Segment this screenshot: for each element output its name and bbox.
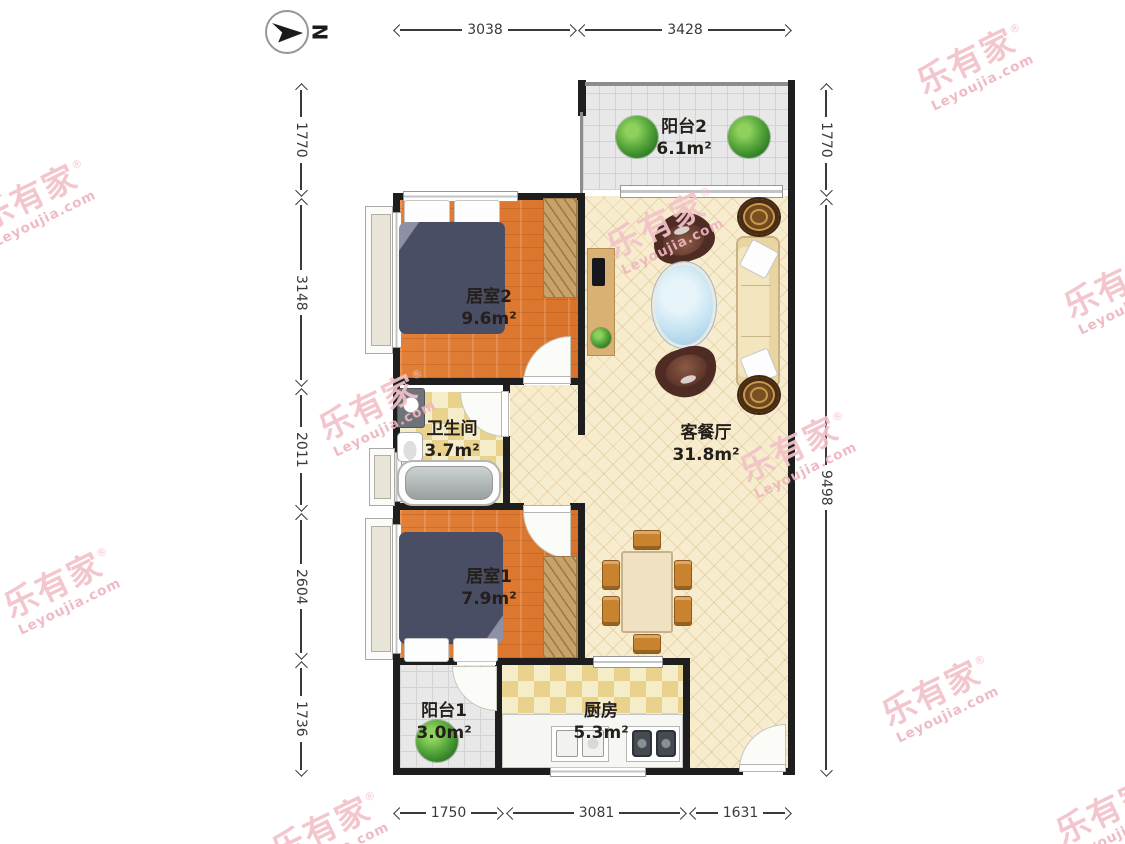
watermark: 乐有家®Leyoujia.com: [888, 0, 1059, 125]
dimension-value: 1770: [293, 117, 309, 163]
dimension-top-1: 3038: [395, 20, 575, 40]
room-label-bedroom1: 居室1 7.9m²: [461, 566, 516, 611]
plant-icon: [591, 328, 611, 348]
room-label-living: 客餐厅 31.8m²: [672, 422, 739, 467]
entrance-door-panel: [739, 764, 786, 772]
plant-icon: [728, 116, 770, 158]
dimension-value: 2011: [293, 427, 309, 473]
arrow-icon: [295, 198, 308, 211]
watermark: 乐有家®Leyoujia.com: [1027, 750, 1125, 844]
room-area: 6.1m²: [656, 138, 711, 160]
arrow-icon: [295, 499, 308, 512]
arrow-icon: [295, 83, 308, 96]
dimension-value: 3428: [662, 22, 708, 38]
side-table-icon: [739, 377, 779, 413]
room-name: 阳台1: [416, 700, 471, 722]
hallway-floor: [510, 385, 585, 510]
room-name: 客餐厅: [672, 422, 739, 444]
dining-chair-icon: [674, 596, 692, 626]
sofa-cushion-seam: [741, 285, 771, 286]
dining-table-icon: [621, 551, 673, 633]
dimension-left-3: 2011: [291, 390, 311, 510]
room-label-bedroom2: 居室2 9.6m²: [461, 286, 516, 331]
room-area: 3.0m²: [416, 722, 471, 744]
watermark: 乐有家®Leyoujia.com: [853, 632, 1024, 757]
dining-chair-icon: [602, 560, 620, 590]
north-label: N: [307, 24, 331, 41]
bay-window: [374, 455, 391, 499]
dimension-left-2: 3148: [291, 200, 311, 385]
dimension-value: 3038: [462, 22, 508, 38]
arrow-icon: [491, 807, 504, 820]
wall: [578, 385, 585, 435]
room-area: 3.7m²: [424, 440, 479, 462]
watermark: 乐有家®Leyoujia.com: [1035, 224, 1125, 349]
room-label-balcony1: 阳台1 3.0m²: [416, 700, 471, 745]
side-table-icon: [739, 199, 779, 235]
plant-icon: [616, 116, 658, 158]
dimension-left-5: 1736: [291, 663, 311, 775]
stove-burner: [656, 730, 676, 757]
wall: [503, 436, 510, 510]
arrow-icon: [779, 24, 792, 37]
wall: [578, 193, 585, 385]
dining-chair-icon: [633, 530, 661, 550]
dimension-top-2: 3428: [580, 20, 790, 40]
door-panel: [501, 391, 509, 437]
wall: [393, 378, 524, 385]
tv-icon: [592, 258, 605, 286]
arrow-icon: [295, 661, 308, 674]
room-name: 卫生间: [424, 418, 479, 440]
balcony-railing: [580, 112, 583, 194]
arrow-icon: [779, 807, 792, 820]
arrow-icon: [689, 807, 702, 820]
arrow-icon: [578, 24, 591, 37]
room-area: 9.6m²: [461, 308, 516, 330]
room-label-kitchen: 厨房 5.3m²: [573, 700, 628, 745]
dining-chair-icon: [602, 596, 620, 626]
dimension-bottom-2: 3081: [508, 803, 685, 823]
dimension-right-2: 9498: [816, 200, 836, 775]
arrow-icon: [820, 184, 833, 197]
arrow-icon: [295, 388, 308, 401]
pillow-icon: [453, 638, 498, 662]
arrow-icon: [393, 807, 406, 820]
wall: [570, 378, 585, 385]
room-label-balcony2: 阳台2 6.1m²: [656, 116, 711, 161]
balcony-railing: [585, 82, 788, 86]
door-panel: [523, 505, 571, 513]
wall: [788, 80, 795, 775]
arrow-icon: [820, 83, 833, 96]
room-area: 31.8m²: [672, 444, 739, 466]
kitchen-pass-window: [593, 656, 663, 668]
dimension-value: 1770: [818, 117, 834, 163]
dimension-value: 2604: [293, 564, 309, 610]
sink-icon: [397, 388, 425, 428]
room-label-bathroom: 卫生间 3.7m²: [424, 418, 479, 463]
arrow-icon: [295, 374, 308, 387]
pillow-icon: [404, 638, 449, 662]
dimension-bottom-1: 1750: [395, 803, 502, 823]
bay-window: [371, 526, 391, 652]
arrow-icon: [393, 24, 406, 37]
dimension-right-1: 1770: [816, 85, 836, 195]
dining-chair-icon: [633, 634, 661, 654]
sofa-cushion-seam: [741, 336, 771, 337]
stove-burner: [632, 730, 652, 757]
arrow-icon: [674, 807, 687, 820]
room-name: 居室2: [461, 286, 516, 308]
room-name: 居室1: [461, 566, 516, 588]
dimension-value: 3081: [574, 805, 620, 821]
bathtub-basin: [405, 466, 493, 500]
arrow-icon: [295, 184, 308, 197]
floor-plan-image: 阳台2 6.1m² 居室2 9.6m² 卫生间 3.7m² 客餐厅 31.8m²…: [0, 0, 1125, 844]
wardrobe-icon: [543, 556, 577, 658]
coffee-table-icon: [652, 262, 716, 348]
watermark: 乐有家®Leyoujia.com: [243, 768, 414, 844]
wardrobe-icon: [543, 198, 577, 298]
arrow-icon: [295, 647, 308, 660]
wall: [683, 658, 690, 775]
dimension-value: 1631: [718, 805, 764, 821]
watermark: 乐有家®Leyoujia.com: [0, 136, 120, 261]
door-panel: [523, 376, 571, 384]
wall: [570, 503, 585, 510]
dimension-value: 1736: [293, 696, 309, 742]
dining-chair-icon: [674, 560, 692, 590]
dimension-value: 3148: [293, 270, 309, 316]
sliding-door: [620, 185, 783, 198]
arrow-icon: [506, 807, 519, 820]
arrow-icon: [820, 198, 833, 211]
room-name: 厨房: [573, 700, 628, 722]
wall: [578, 510, 585, 662]
wall: [496, 658, 585, 665]
room-area: 5.3m²: [573, 722, 628, 744]
arrow-icon: [564, 24, 577, 37]
dimension-left-4: 2604: [291, 515, 311, 658]
bay-window: [371, 214, 391, 346]
arrow-icon: [295, 513, 308, 526]
arrow-icon: [820, 764, 833, 777]
toilet-icon: [397, 432, 423, 462]
room-area: 7.9m²: [461, 588, 516, 610]
dimension-value: 1750: [426, 805, 472, 821]
watermark: 乐有家®Leyoujia.com: [0, 524, 145, 649]
dimension-bottom-3: 1631: [691, 803, 790, 823]
dimension-left-1: 1770: [291, 85, 311, 195]
dimension-value: 9498: [818, 465, 834, 511]
arrow-icon: [295, 764, 308, 777]
room-name: 阳台2: [656, 116, 711, 138]
